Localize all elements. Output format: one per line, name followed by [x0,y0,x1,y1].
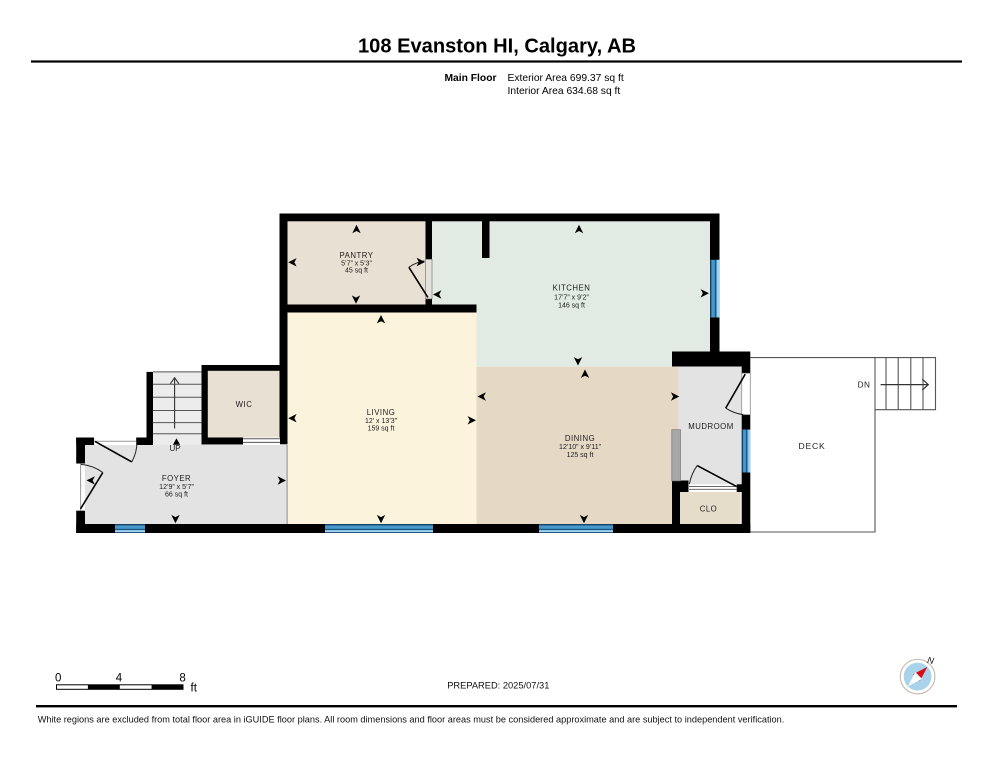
svg-text:KITCHEN: KITCHEN [553,283,591,292]
svg-text:4: 4 [116,673,123,685]
svg-text:DECK: DECK [798,441,825,451]
svg-text:66 sq ft: 66 sq ft [165,492,188,499]
svg-text:DINING: DINING [565,434,595,443]
svg-text:108 Evanston HI, Calgary, AB: 108 Evanston HI, Calgary, AB [358,36,636,58]
svg-text:LIVING: LIVING [367,408,396,417]
svg-text:Interior Area 634.68 sq ft: Interior Area 634.68 sq ft [508,86,621,97]
svg-text:PANTRY: PANTRY [340,251,374,260]
svg-text:12’10” x 9’11”: 12’10” x 9’11” [559,444,602,451]
svg-text:White regions are excluded fro: White regions are excluded from total fl… [38,714,785,724]
svg-text:MUDROOM: MUDROOM [688,422,734,431]
svg-text:5’7” x 5’3”: 5’7” x 5’3” [341,260,372,267]
svg-text:125 sq ft: 125 sq ft [567,452,594,459]
svg-text:12’ x 13’3”: 12’ x 13’3” [365,418,398,425]
svg-text:UP: UP [169,444,180,453]
svg-text:Main Floor: Main Floor [444,73,496,84]
svg-text:PREPARED: 2025/07/31: PREPARED: 2025/07/31 [447,681,549,691]
svg-text:N: N [927,655,936,666]
svg-text:17’7” x 9’2”: 17’7” x 9’2” [554,294,589,301]
svg-text:Exterior Area 699.37 sq ft: Exterior Area 699.37 sq ft [508,73,624,84]
svg-text:FOYER: FOYER [162,474,191,483]
svg-text:159 sq ft: 159 sq ft [368,425,395,432]
svg-text:12’9” x 5’7”: 12’9” x 5’7” [159,484,194,491]
svg-text:CLO: CLO [700,504,718,513]
svg-text:45 sq ft: 45 sq ft [345,267,368,274]
svg-text:8: 8 [179,673,185,685]
svg-text:DN: DN [858,381,871,390]
svg-text:WIC: WIC [236,400,253,409]
svg-text:0: 0 [55,673,61,685]
svg-text:146 sq ft: 146 sq ft [558,303,585,310]
svg-text:ft: ft [191,683,198,695]
